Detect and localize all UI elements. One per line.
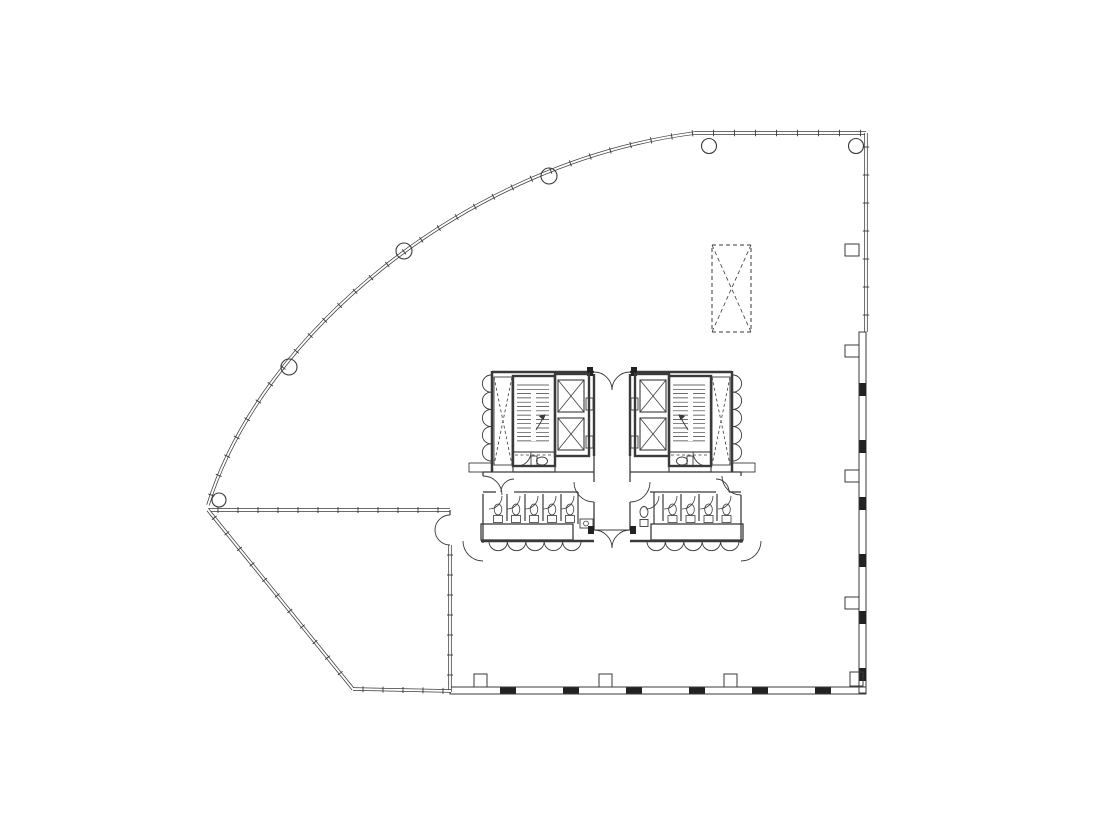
east-wall-panel-joints	[860, 440, 867, 453]
lobby-south-jamb-2	[630, 526, 636, 534]
east-wall-panel-joints	[860, 497, 867, 510]
south-wall-panel-joints	[815, 688, 831, 694]
mop-sink-drain	[584, 521, 589, 526]
stall-doors-right	[718, 496, 731, 509]
curtain-wall-mullion-ticks	[671, 133, 672, 139]
core-west-closet-doors	[482, 444, 491, 461]
column-top-2	[849, 139, 864, 154]
wc-right-bowl	[677, 457, 688, 465]
toilet-tank	[512, 516, 521, 523]
east-column-fin-4	[845, 597, 859, 609]
core-sw-door	[463, 541, 483, 561]
core-east-stub	[732, 463, 755, 472]
lobby-south-door-leaf-2	[612, 530, 630, 548]
sink-row-left	[489, 542, 507, 551]
sink-row-left	[544, 542, 562, 551]
south-wall-panel-joints	[689, 688, 705, 694]
stall-doors-right	[700, 496, 713, 509]
core-east-closet-doors	[733, 375, 742, 392]
restroom-left-entry-swing	[501, 479, 514, 492]
lobby-north-door-leaf-2	[612, 372, 630, 390]
toilet-tank	[722, 516, 731, 523]
stall-doors-left	[561, 496, 574, 509]
wc-right-door	[693, 452, 707, 466]
accessible-wc-bowl	[640, 507, 648, 518]
core-west-stub	[469, 463, 492, 472]
stair-right-rail	[688, 391, 693, 441]
south-wall-panel-joints	[752, 688, 768, 694]
south-wall-panel-joints	[563, 688, 579, 694]
sink-row-left	[526, 542, 544, 551]
toilet-tank	[686, 516, 695, 523]
core-east-closet-doors	[733, 427, 742, 444]
toilet-tank	[530, 516, 539, 523]
terrace-wall-angled-inner	[208, 510, 353, 689]
south-column-fins	[724, 674, 737, 687]
sink-row-right	[721, 542, 739, 551]
terrace-double-door-leaf-2	[435, 530, 450, 545]
core-se-door	[741, 541, 761, 561]
east-column-fin-3	[845, 470, 859, 482]
terrace-double-door-leaf-1	[435, 515, 450, 530]
stair-left-arrowhead	[540, 415, 545, 420]
curtain-wall-curve	[208, 133, 866, 505]
east-wall-panel-joints	[860, 383, 867, 396]
wc-left-door	[517, 452, 531, 466]
core-west-closet-doors	[482, 375, 491, 392]
south-wall-panel-joints	[500, 688, 516, 694]
core-east-closet-doors	[733, 392, 742, 409]
east-column-fin-1	[845, 244, 859, 256]
core-east-closet-doors	[733, 409, 742, 426]
floor-plan-drawing	[0, 0, 1100, 828]
sink-row-left	[507, 542, 525, 551]
accessible-wc-tank	[640, 520, 648, 527]
toilet-tank	[566, 516, 575, 523]
toilet-tank	[668, 516, 677, 523]
stall-doors-right	[646, 496, 659, 509]
east-wall-panel-joints	[860, 611, 867, 624]
stall-doors-right	[664, 496, 677, 509]
stall-doors-right	[682, 496, 695, 509]
toilet-tank	[494, 516, 503, 523]
sink-row-right	[684, 542, 702, 551]
stall-doors-left	[507, 496, 520, 509]
curtain-wall-mullion-ticks	[692, 130, 693, 136]
accessible-wc-door	[630, 482, 650, 502]
vestibule-door-left	[574, 482, 594, 502]
sink-row-right	[647, 542, 665, 551]
plumbing-chase-right	[651, 524, 743, 540]
curtain-wall-mullion-ticks	[650, 137, 651, 143]
stair-right-arrowhead	[679, 415, 684, 420]
core-west-closet-doors	[482, 427, 491, 444]
south-column-fins	[474, 674, 487, 687]
stall-doors-left	[489, 496, 502, 509]
sink-row-right	[665, 542, 683, 551]
core-east-closet-doors	[733, 444, 742, 461]
column-top-1	[702, 139, 717, 154]
restroom-right-entry-swing	[716, 479, 729, 492]
core-west-closet-doors	[482, 392, 491, 409]
lobby-south-door-leaf-1	[594, 530, 612, 548]
plumbing-chase-left	[481, 524, 573, 540]
sink-row-right	[702, 542, 720, 551]
south-column-fins	[599, 674, 612, 687]
column-apex	[212, 493, 226, 507]
floor-plan-page	[0, 0, 1100, 828]
wc-left-bowl	[537, 457, 548, 465]
stall-doors-left	[543, 496, 556, 509]
stair-left-rail	[531, 391, 536, 441]
toilet-tank	[548, 516, 557, 523]
sink-row-left	[563, 542, 581, 551]
lobby-north-door-leaf-1	[594, 372, 612, 390]
east-column-fin-2	[845, 345, 859, 357]
south-wall-panel-joints	[626, 688, 642, 694]
core-west-closet-doors	[482, 409, 491, 426]
toilet-tank	[704, 516, 713, 523]
east-wall-panel-joints	[860, 554, 867, 567]
curtain-wall-curve-inner	[208, 133, 866, 505]
lobby-south-jamb-1	[588, 526, 594, 534]
stall-doors-left	[525, 496, 538, 509]
